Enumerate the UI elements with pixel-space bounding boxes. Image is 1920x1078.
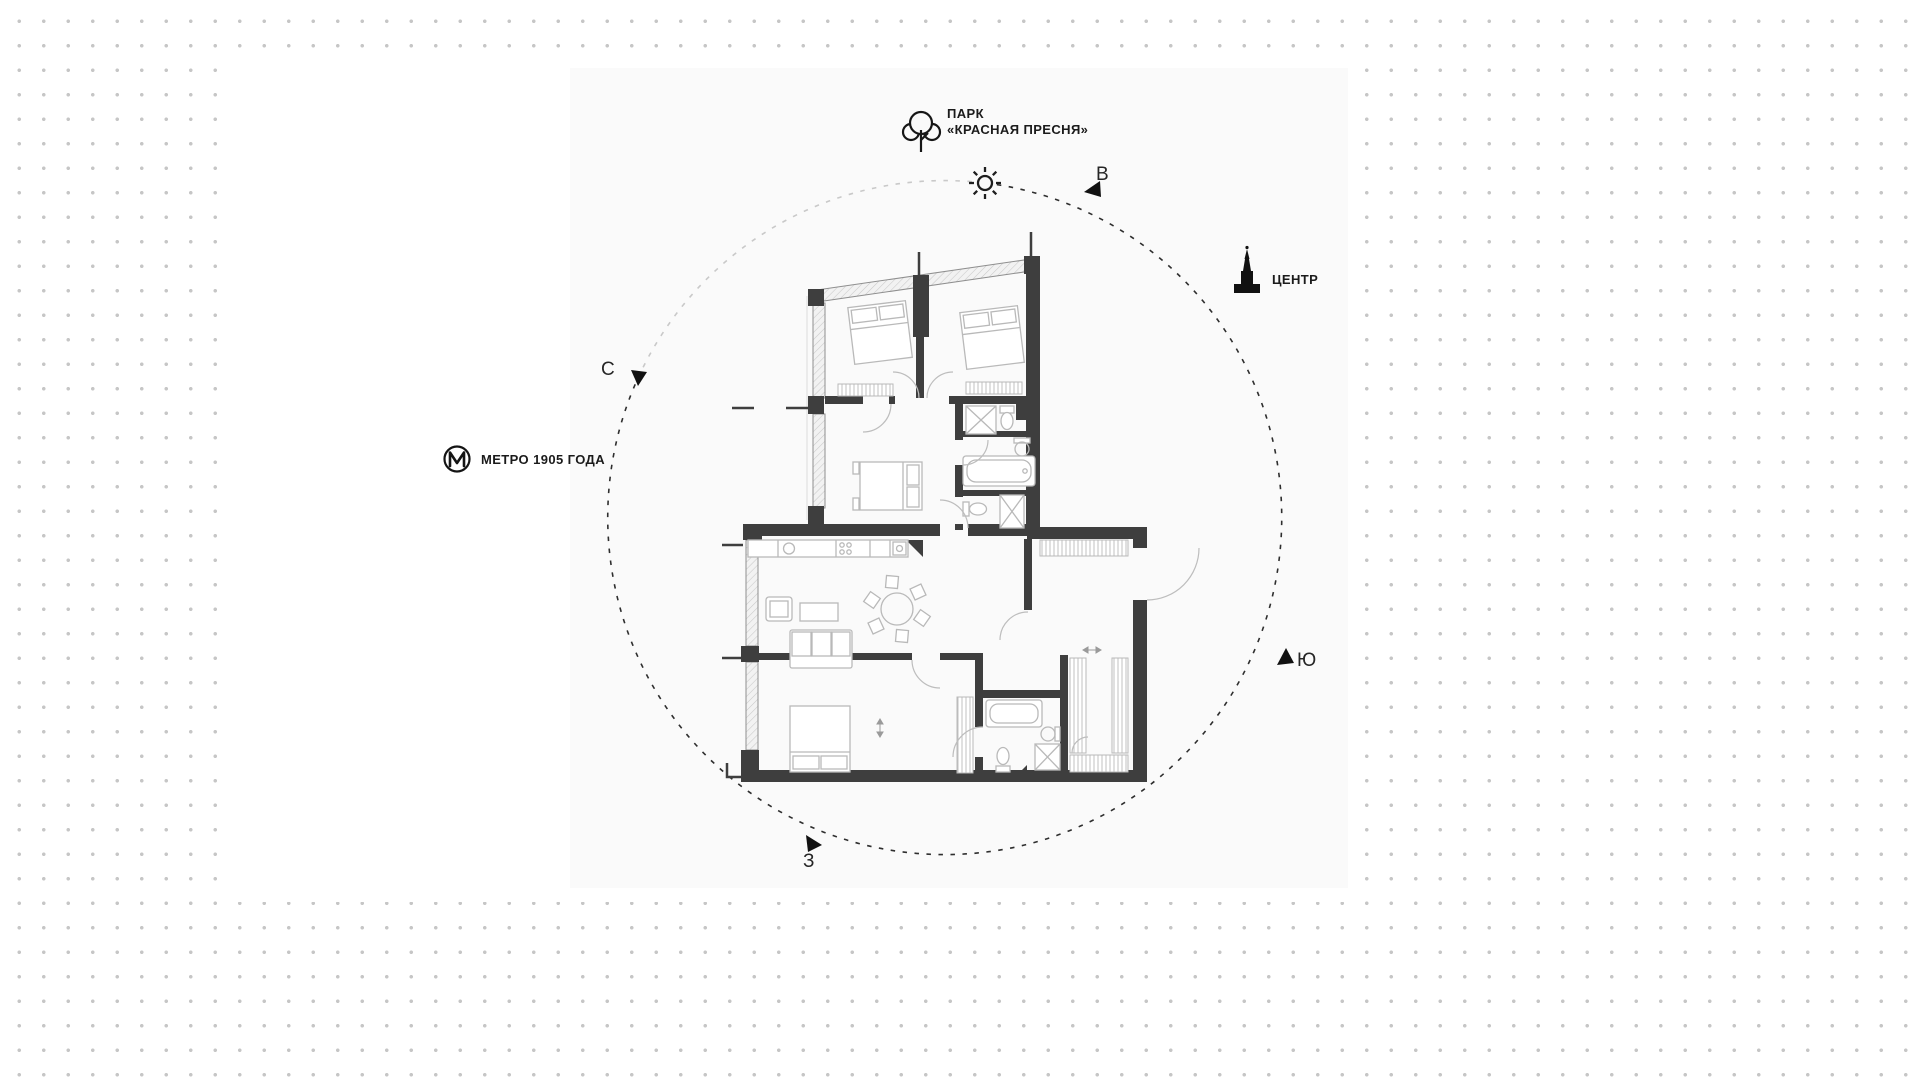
park-label-line1: ПАРК xyxy=(947,106,1088,122)
compass-east-label: В xyxy=(1096,164,1109,186)
plan-card xyxy=(230,68,1350,902)
dotted-background: ПАРК «КРАСНАЯ ПРЕСНЯ» ЦЕНТР МЕТРО 1905 Г… xyxy=(0,0,1920,1078)
compass-south-label: Ю xyxy=(1297,650,1316,672)
center-label: ЦЕНТР xyxy=(1272,272,1318,288)
park-label: ПАРК «КРАСНАЯ ПРЕСНЯ» xyxy=(947,106,1088,138)
park-label-line2: «КРАСНАЯ ПРЕСНЯ» xyxy=(947,122,1088,138)
metro-label: МЕТРО 1905 ГОДА xyxy=(481,452,605,468)
plan-image-area xyxy=(570,68,1348,888)
compass-west-label: З xyxy=(803,851,815,873)
compass-north-label: С xyxy=(601,359,615,381)
